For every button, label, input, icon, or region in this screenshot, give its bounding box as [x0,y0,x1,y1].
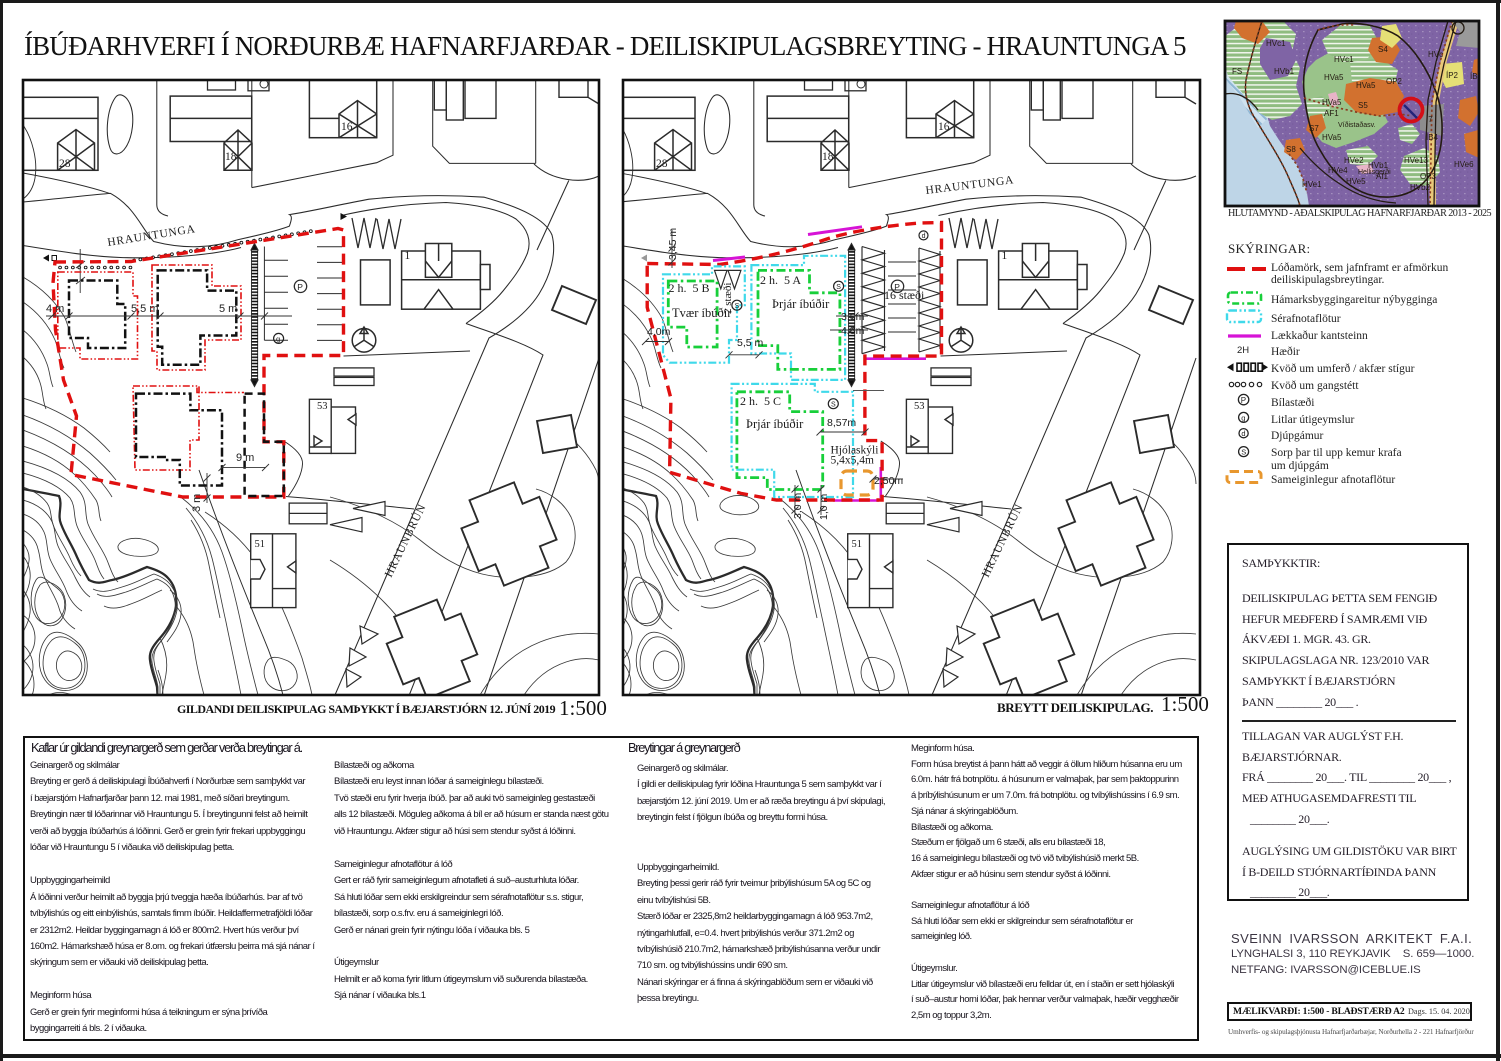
svg-text:HRAUNBRÚN: HRAUNBRÚN [381,501,429,579]
svg-text:2 h. 5 B: 2 h. 5 B [669,281,710,295]
svg-text:HVb2: HVb2 [1410,183,1431,192]
svg-text:9 m: 9 m [236,452,254,464]
svg-text:g: g [276,335,280,344]
svg-text:4 m: 4 m [46,303,64,315]
svg-text:HVc: HVc [1428,50,1443,59]
svg-text:5,5 m: 5,5 m [131,303,159,315]
svg-text:S: S [831,401,836,408]
svg-text:S8: S8 [1286,145,1296,154]
svg-text:8,57m: 8,57m [827,417,856,429]
svg-text:16 stæði: 16 stæði [884,288,925,302]
svg-text:ÍB4: ÍB4 [1426,133,1439,142]
svg-text:HVe4: HVe4 [1328,166,1348,175]
svg-text:HRAUNTUNGA: HRAUNTUNGA [925,174,1015,197]
svg-text:HVe13: HVe13 [1404,156,1429,165]
svg-text:FS: FS [1232,67,1242,76]
svg-text:2 stæði: 2 stæði [722,283,734,314]
svg-text:2 h. 5 C: 2 h. 5 C [740,394,781,408]
svg-text:S: S [1241,448,1246,457]
svg-text:5,4x5,4m: 5,4x5,4m [831,455,875,467]
svg-text:HVe6: HVe6 [1454,160,1474,169]
svg-text:S7: S7 [1309,124,1319,133]
svg-text:5 m: 5 m [219,303,237,315]
svg-text:Hellisgerði: Hellisgerði [1358,168,1391,176]
svg-text:4,8m: 4,8m [841,325,865,337]
svg-text:2H: 2H [1237,345,1249,356]
svg-text:Þrjár íbúðir: Þrjár íbúðir [772,297,830,311]
svg-text:3,45 m: 3,45 m [667,228,679,260]
svg-text:HVa5: HVa5 [1322,98,1342,107]
svg-text:ÍP2: ÍP2 [1446,71,1459,80]
svg-text:5,5 m: 5,5 m [737,337,764,349]
svg-text:HVa5: HVa5 [1322,133,1342,142]
svg-text:d: d [1241,429,1245,438]
svg-text:4,0m: 4,0m [647,326,671,338]
svg-text:3,0 m: 3,0 m [792,492,804,519]
svg-text:S: S [836,284,841,291]
svg-text:OP2: OP2 [1386,77,1403,86]
svg-text:g: g [1241,413,1245,422]
svg-text:HVc1: HVc1 [1266,39,1286,48]
svg-text:HVa5: HVa5 [1356,81,1376,90]
svg-text:HRAUNBRÚN: HRAUNBRÚN [978,501,1026,579]
svg-text:Í7: Í7 [1426,115,1433,124]
svg-text:HVe5: HVe5 [1346,177,1366,186]
svg-text:Þrjár íbúðir: Þrjár íbúðir [746,417,804,431]
svg-text:3 m: 3 m [191,494,203,512]
svg-text:2,50m: 2,50m [874,475,903,487]
svg-text:P: P [1241,396,1246,405]
svg-text:HVe2: HVe2 [1344,156,1364,165]
svg-text:OP3: OP3 [1420,172,1437,181]
svg-text:HRAUNTUNGA: HRAUNTUNGA [107,223,197,249]
svg-text:S5: S5 [1358,101,1368,110]
svg-text:ÍB: ÍB [1470,72,1478,81]
svg-text:S: S [735,303,740,310]
svg-text:Víðistaðasv.: Víðistaðasv. [1338,121,1376,129]
svg-text:AF1: AF1 [1324,109,1339,118]
svg-text:S4: S4 [1378,45,1388,54]
svg-text:HVa5: HVa5 [1324,73,1344,82]
svg-text:HVc1: HVc1 [1334,55,1354,64]
svg-text:HVe1: HVe1 [1302,180,1322,189]
svg-text:3,6m: 3,6m [841,311,865,323]
svg-text:d: d [922,233,926,240]
svg-text:HVb1: HVb1 [1274,67,1295,76]
svg-text:2 h. 5 A: 2 h. 5 A [760,273,801,287]
